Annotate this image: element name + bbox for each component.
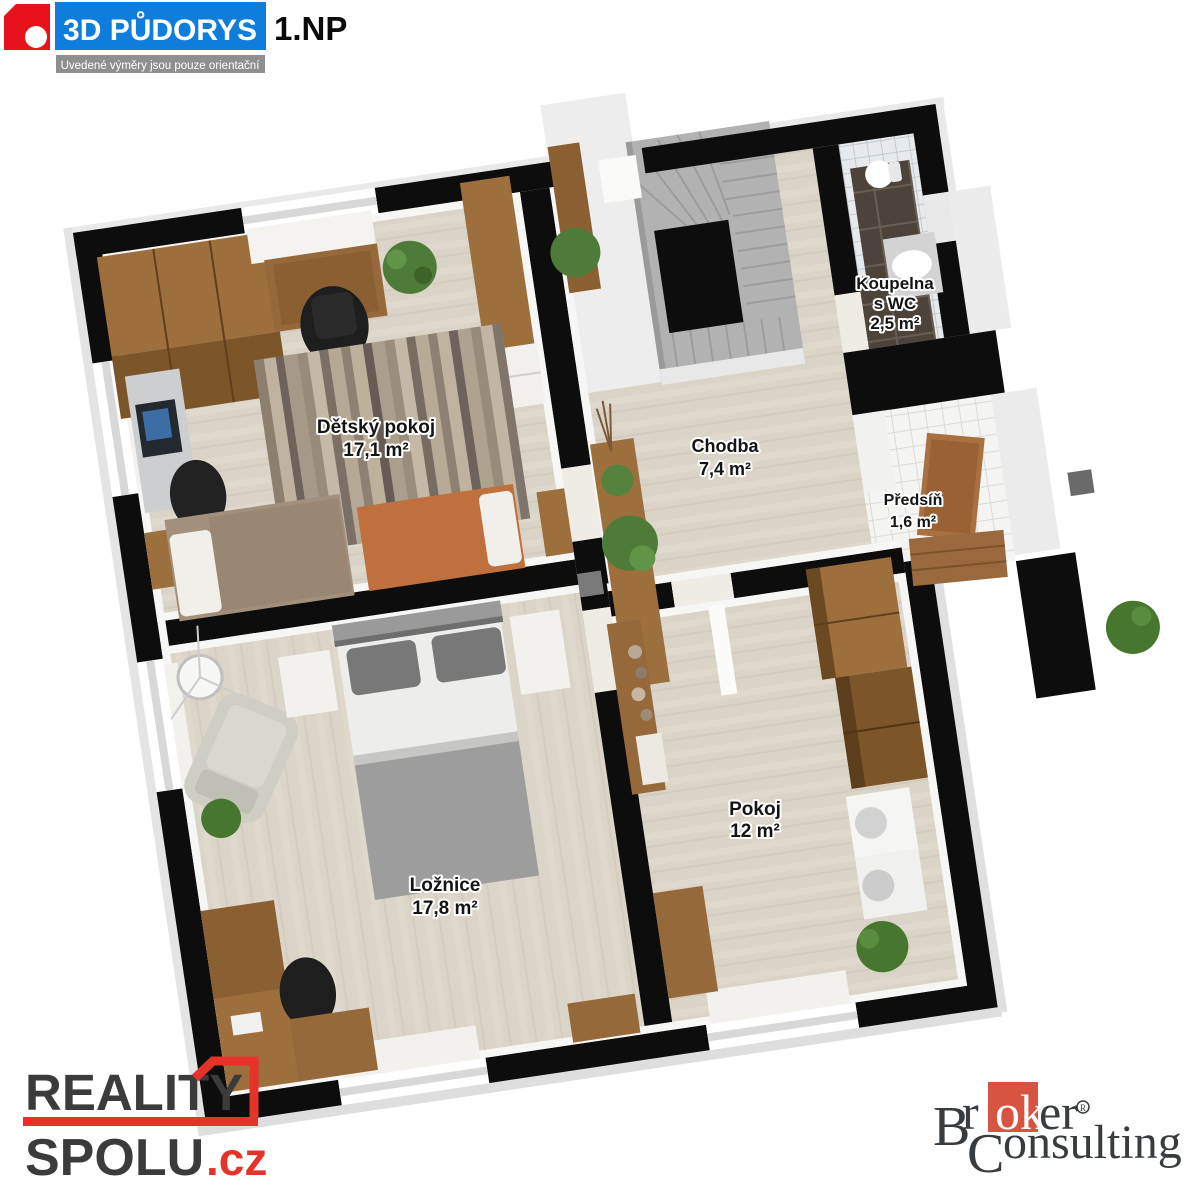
svg-text:Chodba: Chodba: [692, 436, 760, 456]
svg-text:.cz: .cz: [206, 1133, 267, 1185]
svg-text:SPOLU: SPOLU: [25, 1129, 204, 1187]
svg-text:s WC: s WC: [874, 294, 917, 313]
svg-text:Pokoj: Pokoj: [729, 799, 781, 820]
svg-text:17,8 m²: 17,8 m²: [412, 898, 477, 919]
svg-text:Dětský pokoj: Dětský pokoj: [317, 417, 435, 438]
svg-text:7,4 m²: 7,4 m²: [699, 459, 751, 479]
svg-text:3D PŮDORYS: 3D PŮDORYS: [63, 11, 257, 47]
svg-text:C: C: [967, 1123, 1004, 1185]
svg-text:12 m²: 12 m²: [730, 821, 780, 842]
svg-text:1,6 m²: 1,6 m²: [890, 514, 936, 531]
svg-text:2,5 m²: 2,5 m²: [870, 314, 919, 333]
svg-text:onsulting: onsulting: [1003, 1116, 1182, 1169]
svg-text:Ložnice: Ložnice: [410, 875, 481, 896]
svg-text:REALITY: REALITY: [25, 1064, 243, 1121]
svg-text:17,1 m²: 17,1 m²: [343, 440, 408, 461]
svg-text:1.NP: 1.NP: [274, 10, 347, 47]
svg-text:R: R: [1080, 1103, 1086, 1113]
svg-text:Koupelna: Koupelna: [856, 274, 934, 293]
svg-text:Uvedené výměry jsou pouze orie: Uvedené výměry jsou pouze orientační: [61, 60, 261, 72]
svg-text:Předsíň: Předsíň: [884, 492, 943, 509]
